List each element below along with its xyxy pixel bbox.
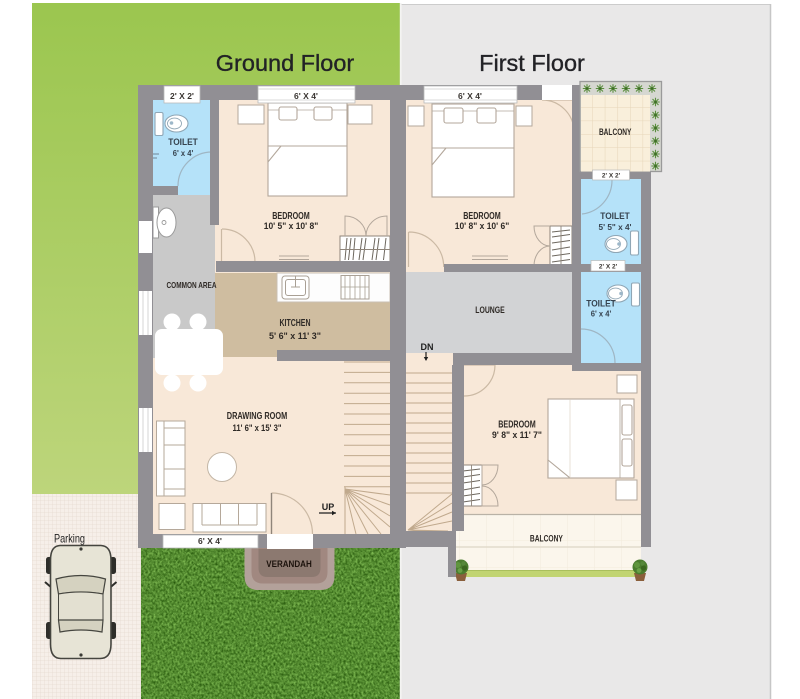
- svg-text:10' 5" x 10' 8": 10' 5" x 10' 8": [264, 221, 319, 231]
- svg-text:VERANDAH: VERANDAH: [266, 559, 312, 569]
- svg-text:5' 5" x 4': 5' 5" x 4': [599, 222, 632, 232]
- svg-text:11' 6" x 15' 3": 11' 6" x 15' 3": [233, 423, 282, 433]
- svg-text:Ground Floor: Ground Floor: [216, 50, 355, 76]
- svg-text:KITCHEN: KITCHEN: [280, 318, 311, 329]
- svg-text:BALCONY: BALCONY: [530, 534, 563, 545]
- svg-text:5' 6" x 11' 3": 5' 6" x 11' 3": [269, 331, 321, 341]
- svg-text:UP: UP: [322, 502, 335, 512]
- svg-text:6' x 4': 6' x 4': [591, 309, 612, 319]
- svg-text:TOILET: TOILET: [168, 137, 198, 148]
- svg-text:6' X 4': 6' X 4': [458, 91, 482, 101]
- svg-text:10' 8" x 10' 6": 10' 8" x 10' 6": [455, 221, 510, 231]
- svg-text:BALCONY: BALCONY: [599, 127, 632, 138]
- svg-text:2' X 2': 2' X 2': [599, 264, 618, 271]
- svg-text:2' X 2': 2' X 2': [602, 173, 621, 180]
- svg-text:First Floor: First Floor: [479, 50, 585, 76]
- svg-text:DN: DN: [421, 342, 434, 352]
- svg-text:9' 8" x 11' 7": 9' 8" x 11' 7": [492, 430, 542, 440]
- svg-text:6' X 4': 6' X 4': [294, 91, 318, 101]
- svg-text:DRAWING ROOM: DRAWING ROOM: [227, 411, 288, 422]
- svg-text:COMMON AREA: COMMON AREA: [167, 280, 217, 290]
- svg-text:2' X 2': 2' X 2': [170, 91, 194, 101]
- svg-text:BEDROOM: BEDROOM: [498, 420, 536, 431]
- svg-text:TOILET: TOILET: [600, 211, 630, 222]
- svg-text:Parking: Parking: [54, 532, 85, 546]
- svg-text:6' X 4': 6' X 4': [198, 536, 222, 546]
- svg-text:LOUNGE: LOUNGE: [475, 305, 505, 316]
- svg-text:6' x 4': 6' x 4': [173, 148, 194, 158]
